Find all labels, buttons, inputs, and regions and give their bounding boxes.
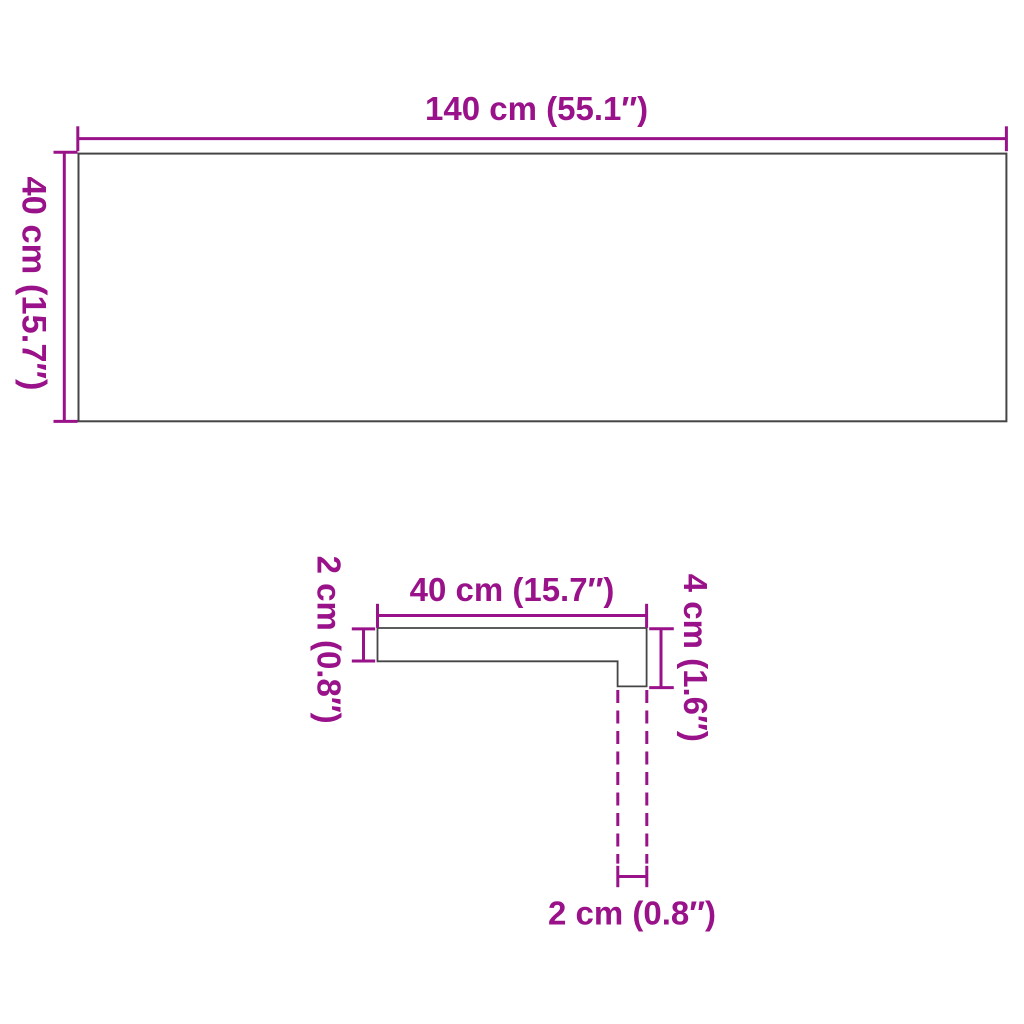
svg-text:140 cm (55.1″): 140 cm (55.1″) — [425, 90, 648, 127]
svg-text:40 cm (15.7″): 40 cm (15.7″) — [410, 571, 615, 608]
svg-text:4 cm (1.6″): 4 cm (1.6″) — [677, 574, 714, 742]
svg-text:40 cm (15.7″): 40 cm (15.7″) — [14, 176, 52, 390]
svg-text:2 cm (0.8″): 2 cm (0.8″) — [548, 894, 716, 931]
svg-text:2 cm (0.8″): 2 cm (0.8″) — [310, 556, 347, 724]
